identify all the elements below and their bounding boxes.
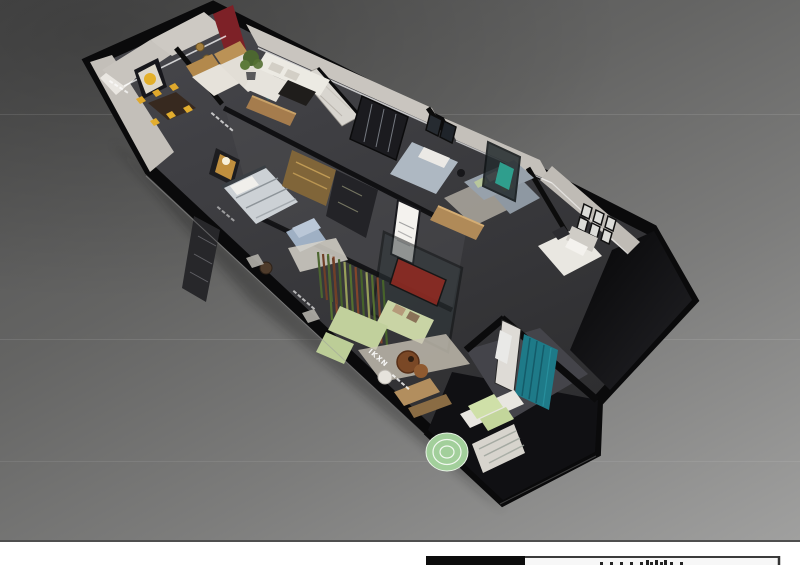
- scalebar-black: [426, 556, 525, 565]
- apartment-render-stage: IKXN: [0, 0, 800, 565]
- round-rug: [426, 433, 468, 471]
- plant-pot: [246, 72, 256, 80]
- plant-foliage-2: [240, 60, 250, 70]
- scene-svg: IKXN: [0, 0, 800, 565]
- artwork-yellow-motif: [144, 73, 156, 85]
- table-lamp: [222, 157, 230, 165]
- bg-seam-line-3: [0, 461, 800, 462]
- plant-foliage-3: [253, 59, 263, 69]
- round-table-small: [414, 364, 428, 378]
- side-table-white: [378, 370, 392, 384]
- side-table: [457, 169, 465, 177]
- wall-disc-1: [196, 43, 204, 51]
- bookshelf-wall: [182, 216, 220, 302]
- table-decor: [408, 356, 414, 362]
